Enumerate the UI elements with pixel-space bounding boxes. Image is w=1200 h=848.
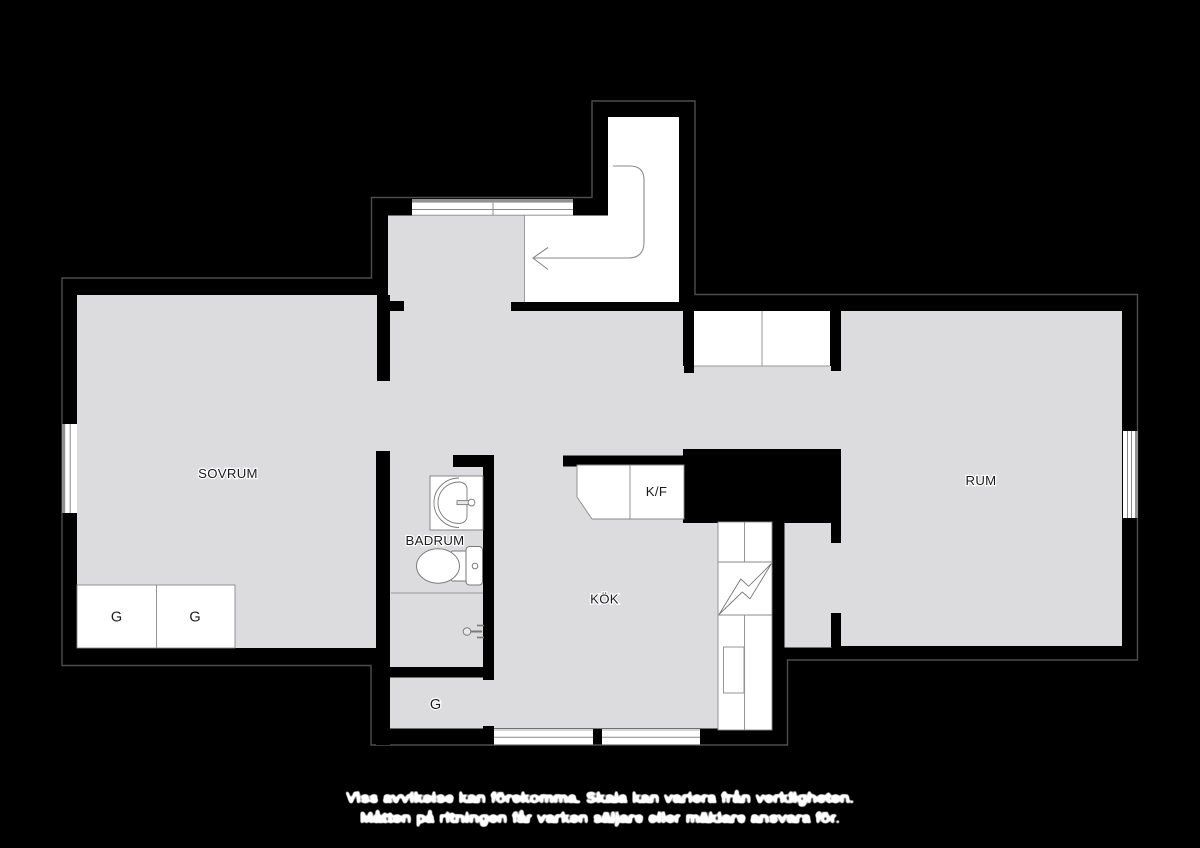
svg-text:RUM: RUM bbox=[966, 473, 997, 488]
svg-text:KÖK: KÖK bbox=[590, 592, 619, 607]
svg-text:G: G bbox=[189, 610, 200, 626]
svg-text:G: G bbox=[430, 697, 441, 713]
svg-text:G: G bbox=[111, 610, 122, 626]
svg-text:BADRUM: BADRUM bbox=[406, 533, 465, 548]
svg-text:SOVRUM: SOVRUM bbox=[198, 466, 258, 481]
svg-text:K/F: K/F bbox=[646, 484, 667, 499]
